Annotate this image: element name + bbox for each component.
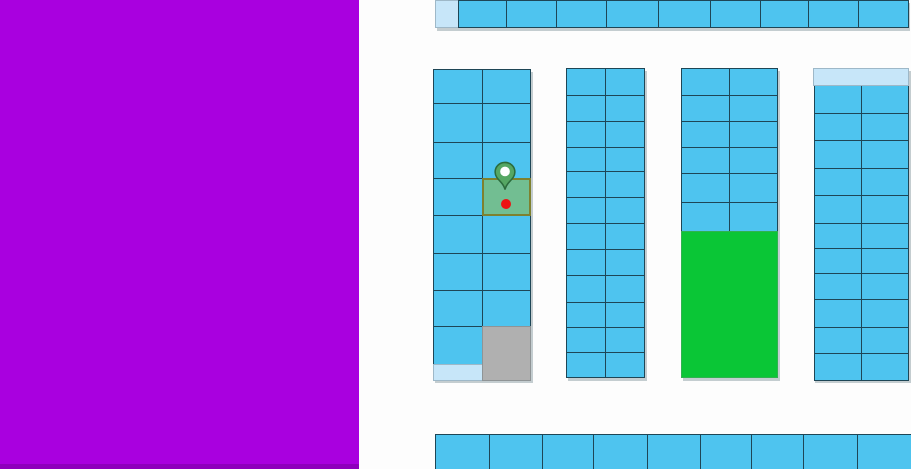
plot-cell[interactable] xyxy=(681,95,730,122)
plot-cell[interactable] xyxy=(506,0,557,28)
left-panel xyxy=(0,0,359,469)
selected-plot-dot xyxy=(501,199,511,209)
plot-cell[interactable] xyxy=(566,121,606,148)
plot-cell[interactable] xyxy=(658,0,711,28)
plot-cell[interactable] xyxy=(681,147,730,174)
plot-cell[interactable] xyxy=(605,352,645,378)
plot-cell[interactable] xyxy=(566,352,606,378)
plot-cell[interactable] xyxy=(861,327,909,354)
plot-cell[interactable] xyxy=(433,69,483,104)
plot-cell[interactable] xyxy=(729,68,778,96)
plot-cell[interactable] xyxy=(861,140,909,169)
plot-cell[interactable] xyxy=(566,249,606,276)
app-window xyxy=(0,0,911,469)
plot-cell[interactable] xyxy=(433,253,483,291)
plot-cell[interactable] xyxy=(729,121,778,148)
plot-cell[interactable] xyxy=(751,434,804,469)
plot-cell[interactable] xyxy=(710,0,761,28)
plot-cell[interactable] xyxy=(482,69,531,104)
plot-cell[interactable] xyxy=(814,168,862,196)
location-pin-icon xyxy=(493,161,517,192)
plot-cell[interactable] xyxy=(814,140,862,169)
plot-cell[interactable] xyxy=(681,202,730,232)
plot-cell[interactable] xyxy=(700,434,752,469)
plot-cell[interactable] xyxy=(605,249,645,276)
plot-cell[interactable] xyxy=(433,290,483,327)
plot-cell[interactable] xyxy=(482,215,531,254)
plot-cell-featured-green[interactable] xyxy=(681,231,778,378)
plot-cell[interactable] xyxy=(566,147,606,172)
plot-cell[interactable] xyxy=(605,302,645,328)
plot-cell[interactable] xyxy=(814,85,862,114)
plot-cell[interactable] xyxy=(814,223,862,249)
plot-cell[interactable] xyxy=(814,248,862,274)
plot-cell[interactable] xyxy=(605,95,645,122)
plot-cell[interactable] xyxy=(566,327,606,353)
plot-cell[interactable] xyxy=(861,195,909,224)
plot-cell[interactable] xyxy=(433,142,483,179)
plot-cell[interactable] xyxy=(760,0,809,28)
plot-cell[interactable] xyxy=(605,275,645,303)
plot-cell[interactable] xyxy=(593,434,648,469)
plot-cell[interactable] xyxy=(861,168,909,196)
plot-cell[interactable] xyxy=(433,326,483,365)
plot-cell[interactable] xyxy=(606,0,659,28)
plot-cell[interactable] xyxy=(605,197,645,224)
plot-cell[interactable] xyxy=(605,223,645,250)
plot-cell[interactable] xyxy=(433,103,483,143)
plot-cell[interactable] xyxy=(814,299,862,328)
plot-cell[interactable] xyxy=(814,113,862,141)
plot-cell[interactable] xyxy=(566,197,606,224)
plot-cell[interactable] xyxy=(681,68,730,96)
plot-cell[interactable] xyxy=(729,147,778,174)
plot-cell[interactable] xyxy=(458,0,507,28)
plot-cell-reserved-light[interactable] xyxy=(433,364,483,381)
plot-cell-reserved-light[interactable] xyxy=(813,68,909,86)
plot-cell[interactable] xyxy=(729,95,778,122)
plot-cell[interactable] xyxy=(857,434,911,469)
plot-cell[interactable] xyxy=(729,202,778,232)
plot-cell[interactable] xyxy=(861,248,909,274)
plot-cell[interactable] xyxy=(566,302,606,328)
plot-cell[interactable] xyxy=(542,434,594,469)
plot-cell[interactable] xyxy=(433,178,483,216)
plot-cell[interactable] xyxy=(681,173,730,203)
plot-cell[interactable] xyxy=(803,434,858,469)
plot-cell[interactable] xyxy=(435,434,490,469)
plot-cell[interactable] xyxy=(556,0,607,28)
plot-cell[interactable] xyxy=(605,68,645,96)
plot-cell[interactable] xyxy=(482,103,531,143)
plot-cell[interactable] xyxy=(681,121,730,148)
plot-cell[interactable] xyxy=(566,275,606,303)
plot-cell[interactable] xyxy=(858,0,909,28)
plot-cell[interactable] xyxy=(605,327,645,353)
plot-cell[interactable] xyxy=(489,434,543,469)
plot-cell[interactable] xyxy=(482,290,531,327)
plot-cell[interactable] xyxy=(861,85,909,114)
plot-cell[interactable] xyxy=(566,171,606,198)
plot-cell[interactable] xyxy=(605,147,645,172)
plot-cell[interactable] xyxy=(605,171,645,198)
plot-cell[interactable] xyxy=(647,434,701,469)
plot-cell[interactable] xyxy=(435,0,459,28)
plot-cell[interactable] xyxy=(482,253,531,291)
plot-cell[interactable] xyxy=(861,353,909,381)
plot-cell[interactable] xyxy=(814,273,862,300)
plot-cell[interactable] xyxy=(814,353,862,381)
plot-cell[interactable] xyxy=(861,299,909,328)
plot-cell[interactable] xyxy=(605,121,645,148)
plot-cell-occupied-gray[interactable] xyxy=(482,326,531,381)
plot-cell[interactable] xyxy=(808,0,859,28)
plot-cell[interactable] xyxy=(861,223,909,249)
plot-cell[interactable] xyxy=(566,68,606,96)
plot-cell[interactable] xyxy=(566,223,606,250)
plot-cell[interactable] xyxy=(729,173,778,203)
plot-cell[interactable] xyxy=(814,327,862,354)
plot-cell[interactable] xyxy=(861,273,909,300)
plot-cell[interactable] xyxy=(566,95,606,122)
plot-cell[interactable] xyxy=(433,215,483,254)
plot-cell[interactable] xyxy=(814,195,862,224)
plot-cell[interactable] xyxy=(861,113,909,141)
